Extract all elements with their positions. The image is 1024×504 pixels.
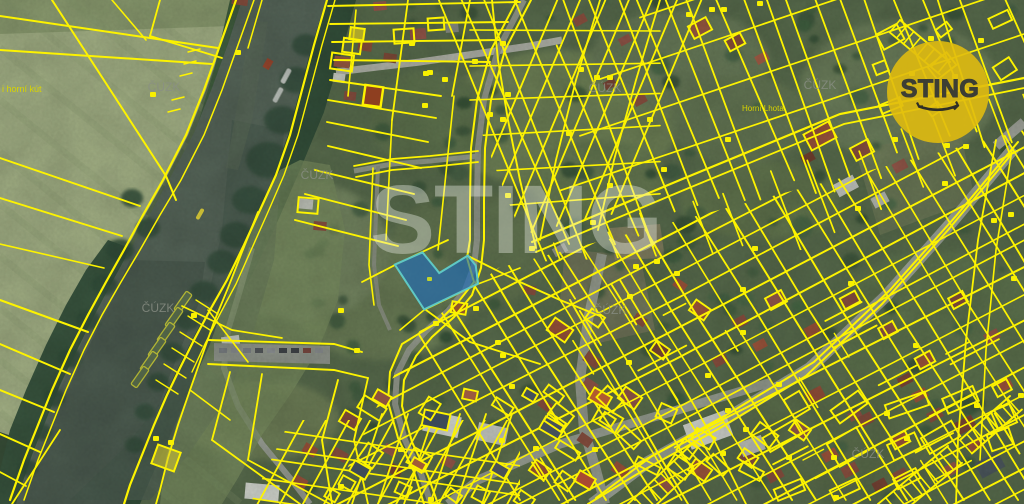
svg-text:ČÚZK: ČÚZK	[594, 302, 627, 317]
svg-text:ČÚZK: ČÚZK	[589, 80, 622, 95]
svg-text:STING: STING	[901, 75, 979, 103]
svg-text:ČÚZK: ČÚZK	[148, 79, 181, 94]
svg-text:i horní kút: i horní kút	[2, 84, 42, 94]
svg-text:ČÚZK: ČÚZK	[142, 300, 175, 315]
svg-text:ČÚZK: ČÚZK	[852, 446, 885, 461]
svg-text:STING: STING	[370, 165, 661, 274]
svg-text:ČÚZK: ČÚZK	[301, 167, 334, 182]
svg-text:Horní Lhota: Horní Lhota	[742, 104, 784, 113]
svg-text:ČÚZK: ČÚZK	[804, 77, 837, 92]
